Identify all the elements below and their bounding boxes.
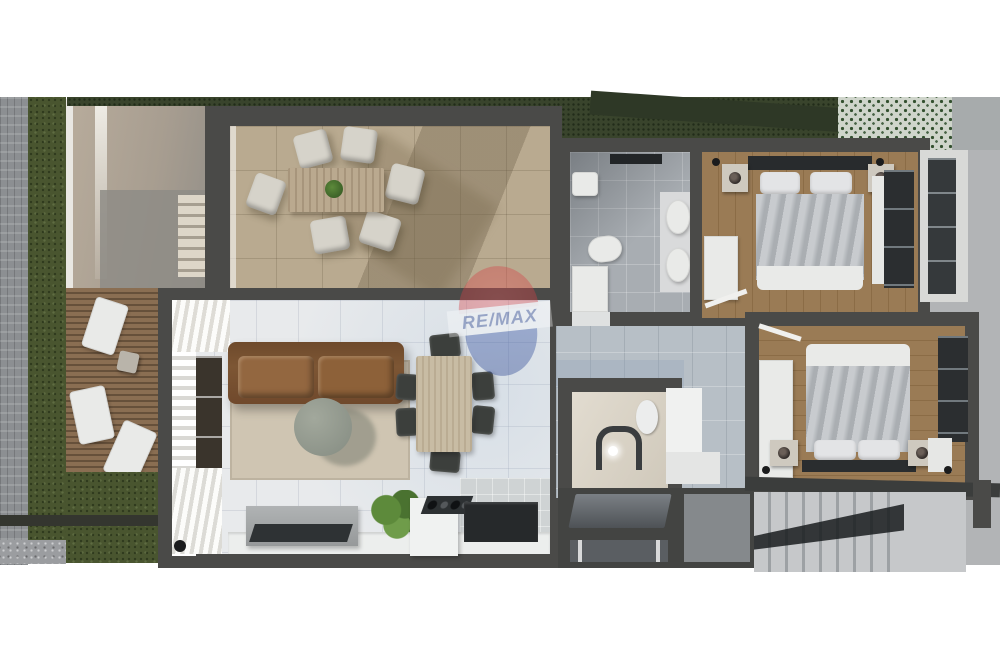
garden-fence (0, 515, 160, 526)
sofa-cushion (318, 356, 394, 398)
vanity-sink (666, 248, 690, 282)
bedside-lamp (729, 172, 741, 184)
bed1-pillow (760, 172, 800, 194)
nightstand (722, 164, 748, 192)
ceiling-spot (712, 158, 720, 166)
bedroom2-window (938, 336, 968, 442)
stair-landing (904, 492, 966, 572)
floor-plan-render: RE/MAX (0, 0, 1000, 667)
grass-strip-left (28, 97, 66, 563)
exterior-top-right (952, 97, 1000, 155)
bed2-pillow (858, 440, 900, 460)
entrance-step-lower (570, 540, 668, 562)
dining-chair (429, 449, 461, 474)
exterior-staircase (754, 492, 904, 572)
nightstand (770, 440, 798, 466)
curtain-fold-top (172, 300, 230, 352)
bed2-headboard (802, 460, 916, 472)
serving-tray (249, 524, 353, 542)
wardrobe (704, 236, 738, 300)
table-plant (325, 180, 343, 198)
step-gap-line (656, 540, 660, 562)
balcony-glazing (928, 158, 956, 294)
bedroom1-window (884, 170, 914, 288)
bed2-pillow (814, 440, 856, 460)
stair-side-wall (973, 480, 991, 528)
gravel-corner (0, 540, 66, 564)
remax-watermark: RE/MAX (442, 255, 558, 387)
wc-toilet (636, 400, 658, 434)
towel-rail (610, 154, 662, 164)
bed1-pillow (810, 172, 852, 194)
wc-faucet-arch (596, 426, 642, 470)
ceiling-spot (762, 466, 770, 474)
remax-balloon-bottom (465, 328, 541, 379)
wc-sink-glow (608, 446, 618, 456)
sofa (228, 342, 404, 404)
bathroom-door-opening (572, 312, 610, 326)
outdoor-chair (340, 126, 378, 164)
coffee-table (294, 398, 352, 456)
hedge-strip-top (67, 97, 562, 106)
sofa-cushion (238, 356, 314, 398)
deck-side-table (116, 350, 140, 374)
bedside-lamp (916, 447, 928, 459)
bed2-blanket (806, 344, 910, 366)
bed1-blanket (757, 266, 863, 290)
floor-lamp-dot (174, 540, 186, 552)
porch-platform (684, 494, 750, 562)
bath-cabinet (572, 266, 608, 312)
wash-basin (572, 172, 598, 196)
entrance-step-upper (568, 494, 671, 528)
window-sill (872, 176, 884, 284)
terrace-wall-highlight (230, 126, 236, 288)
dining-chair (471, 405, 496, 435)
bed2-duvet (806, 352, 910, 452)
staircase-shadow (754, 492, 904, 572)
bath-bedroom-divider-wall (690, 150, 702, 326)
vanity-sink (666, 200, 690, 234)
ceiling-spot (944, 466, 952, 474)
step-gap-line (578, 540, 582, 562)
dark-appliance-nook (464, 502, 538, 542)
stone-wall-left (0, 97, 28, 565)
outdoor-chair (309, 215, 350, 255)
window-glass (196, 356, 222, 478)
wc-step-platform-low (666, 452, 720, 484)
ceiling-spot (876, 158, 884, 166)
bedside-lamp (778, 447, 790, 459)
bed1-headboard (748, 156, 872, 170)
